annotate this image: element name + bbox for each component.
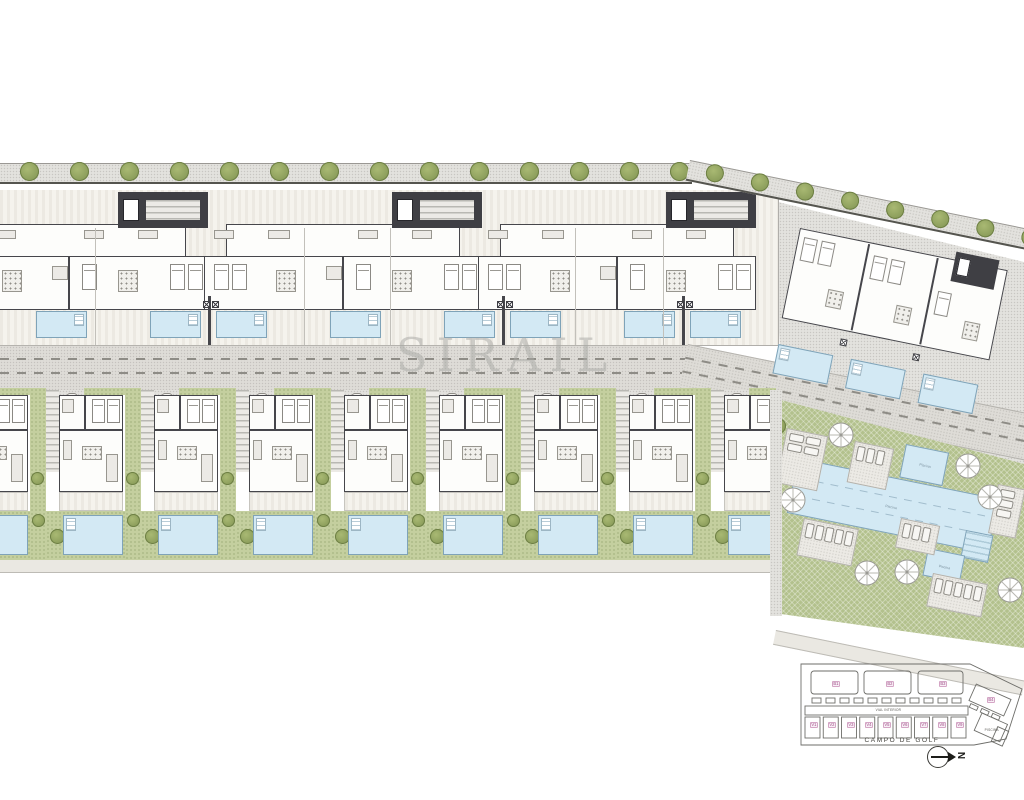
- tree-icon: [222, 514, 235, 527]
- keyplan: B1B2B3B4V1V2V3V4V5V6V7V8V9 VIAL INTERIOR…: [798, 655, 1024, 773]
- pool-steps: [368, 314, 378, 326]
- tree-icon: [370, 162, 389, 181]
- villa: [220, 388, 315, 560]
- interior-wall: [60, 429, 122, 431]
- front-green: [179, 388, 220, 395]
- tree-icon: [704, 163, 725, 184]
- kitchen: [581, 454, 593, 482]
- villa: [125, 388, 220, 560]
- villa-pool: [63, 515, 123, 555]
- front-green: [464, 388, 505, 395]
- sofa: [538, 440, 547, 460]
- keyplan-unit-label: V8: [938, 722, 945, 727]
- elevator: [671, 199, 687, 221]
- side-hedge: [315, 388, 331, 560]
- unit-boundary: [390, 228, 391, 345]
- plan-graphic: [938, 698, 947, 703]
- bed: [92, 399, 105, 423]
- stairs: [420, 200, 474, 220]
- bed: [582, 399, 595, 423]
- pool-steps: [731, 518, 741, 531]
- keyplan-unit-label: V9: [956, 722, 963, 727]
- side-hedge: [30, 388, 46, 560]
- pool-steps: [482, 314, 492, 326]
- tree-icon: [696, 472, 709, 485]
- dining-table: [652, 446, 672, 460]
- bed: [472, 399, 485, 423]
- villa-stairs: [141, 390, 155, 472]
- tree-icon: [470, 162, 489, 181]
- tree-icon: [270, 162, 289, 181]
- pool-steps: [541, 518, 551, 531]
- terrace-post: [497, 301, 504, 308]
- tree-icon: [170, 162, 189, 181]
- side-hedge: [505, 388, 521, 560]
- interior-wall: [179, 396, 181, 429]
- villa-pool: [348, 515, 408, 555]
- villa-stairs: [331, 390, 345, 472]
- villa: [505, 388, 600, 560]
- keyplan-unit-label: B4: [987, 697, 994, 702]
- kitchen: [296, 454, 308, 482]
- wardrobe: [138, 230, 158, 239]
- villa: [410, 388, 505, 560]
- kitchen: [391, 454, 403, 482]
- bed: [214, 264, 229, 290]
- dining-table: [0, 446, 7, 460]
- stair-core: [118, 192, 208, 228]
- tree-icon: [317, 514, 330, 527]
- private-pool: [330, 311, 381, 338]
- sofa: [348, 440, 357, 460]
- pool-steps: [351, 518, 361, 531]
- villa-row-lower-strip: [0, 560, 776, 573]
- watermark: SIRAIL: [396, 328, 616, 382]
- side-hedge: [220, 388, 236, 560]
- tree-icon: [32, 514, 45, 527]
- keyplan-pool-area-label: PISCINA: [985, 729, 999, 732]
- terrace-post: [686, 301, 693, 308]
- sofa: [728, 440, 737, 460]
- private-pool: [772, 344, 833, 385]
- tree-icon: [411, 472, 424, 485]
- dining-table: [177, 446, 197, 460]
- front-green: [559, 388, 600, 395]
- deck: [439, 492, 503, 511]
- campo-de-golf-label: CAMPO DE GOLF: [840, 737, 964, 744]
- deck: [724, 492, 776, 511]
- bed: [107, 399, 120, 423]
- villa-house: [0, 395, 28, 492]
- sofa: [633, 440, 642, 460]
- bathroom: [252, 399, 264, 413]
- plan-graphic: [882, 698, 891, 703]
- pool-steps: [923, 377, 935, 391]
- private-pool: [624, 311, 675, 338]
- deck: [629, 492, 693, 511]
- dining-table: [2, 270, 22, 292]
- bed: [377, 399, 390, 423]
- tree-icon: [316, 472, 329, 485]
- private-pool: [690, 311, 741, 338]
- villa-row: [0, 388, 776, 560]
- villa: [0, 388, 30, 560]
- interior-wall: [345, 429, 407, 431]
- plan-graphic: [896, 698, 905, 703]
- tree-icon: [601, 472, 614, 485]
- keyplan-unit-label: V7: [920, 722, 927, 727]
- kids-pool-label: Piscina: [916, 462, 934, 470]
- wardrobe: [488, 230, 508, 239]
- interior-wall: [654, 396, 656, 429]
- unit-boundary: [304, 228, 305, 345]
- bed: [757, 399, 770, 423]
- pool-steps: [161, 518, 171, 531]
- kitchen: [11, 454, 23, 482]
- keyplan-parking-ticks: [812, 698, 961, 703]
- keyplan-unit-label: V1: [810, 722, 817, 727]
- north-arrow-line: [931, 756, 949, 758]
- kitchen: [676, 454, 688, 482]
- tree-icon: [570, 162, 589, 181]
- dining-table: [82, 446, 102, 460]
- sofa: [63, 440, 72, 460]
- bed: [462, 264, 477, 290]
- bed: [444, 264, 459, 290]
- bed: [282, 399, 295, 423]
- bed: [232, 264, 247, 290]
- party-wall: [342, 256, 344, 310]
- interior-wall: [369, 396, 371, 429]
- bed: [12, 399, 25, 423]
- dining-table: [550, 270, 570, 292]
- villa: [600, 388, 695, 560]
- tree-icon: [221, 472, 234, 485]
- party-wall: [68, 256, 70, 310]
- tree-icon: [126, 472, 139, 485]
- interior-wall: [630, 429, 692, 431]
- tree-icon: [420, 162, 439, 181]
- bed: [506, 264, 521, 290]
- wardrobe: [0, 230, 16, 239]
- keyplan-unit-label: V4: [865, 722, 872, 727]
- dining-table: [557, 446, 577, 460]
- pool-steps: [256, 518, 266, 531]
- wardrobe: [84, 230, 104, 239]
- keyplan-outline: [798, 655, 1024, 773]
- kitchen-island: [600, 266, 616, 280]
- private-pool: [36, 311, 87, 338]
- terrace-post: [677, 301, 684, 308]
- front-green: [654, 388, 695, 395]
- tree-icon: [602, 514, 615, 527]
- villa-stairs: [46, 390, 60, 472]
- bed: [718, 264, 733, 290]
- party-wall: [616, 256, 618, 310]
- side-hedge: [125, 388, 141, 560]
- tree-icon: [839, 190, 860, 211]
- plan-graphic: [854, 698, 863, 703]
- villa-house: [154, 395, 218, 492]
- square-pool-label: Piscina: [936, 563, 954, 570]
- pool-steps: [548, 314, 558, 326]
- bed: [487, 399, 500, 423]
- elevator: [123, 199, 139, 221]
- stairs: [146, 200, 200, 220]
- deck: [344, 492, 408, 511]
- tree-icon: [697, 514, 710, 527]
- stair-core: [392, 192, 482, 228]
- stair-core: [666, 192, 756, 228]
- keyplan-road-label: VIAL INTERIOR: [876, 709, 902, 712]
- villa-stairs: [616, 390, 630, 472]
- interior-wall: [464, 396, 466, 429]
- keyplan-unit-label: B3: [939, 681, 946, 686]
- plan-graphic: [868, 698, 877, 703]
- villa-house: [629, 395, 693, 492]
- pool-steps: [728, 314, 738, 326]
- front-green: [0, 388, 30, 395]
- interior-wall: [0, 429, 27, 431]
- terrace-post: [506, 301, 513, 308]
- bed: [187, 399, 200, 423]
- deck: [154, 492, 218, 511]
- villa-stairs: [521, 390, 535, 472]
- villa-pool: [253, 515, 313, 555]
- tree-icon: [70, 162, 89, 181]
- interior-wall: [274, 396, 276, 429]
- bed: [630, 264, 645, 290]
- plan-graphic: [840, 698, 849, 703]
- site-plan-canvas: Piscina Piscina Piscina: [0, 0, 1024, 800]
- villa: [695, 388, 776, 560]
- dining-table: [392, 270, 412, 292]
- tree-icon: [930, 208, 951, 229]
- keyplan-unit-label: V3: [847, 722, 854, 727]
- kitchen-island: [52, 266, 68, 280]
- bed: [202, 399, 215, 423]
- interior-wall: [440, 429, 502, 431]
- pool-steps: [188, 314, 198, 326]
- pool-steps: [66, 518, 76, 531]
- terrace-post: [912, 353, 920, 361]
- deck: [59, 492, 123, 511]
- villa-house: [249, 395, 313, 492]
- bed: [488, 264, 503, 290]
- interior-wall: [535, 429, 597, 431]
- wardrobe: [542, 230, 564, 239]
- stairs: [694, 200, 748, 220]
- tree-icon: [520, 162, 539, 181]
- deck: [0, 492, 28, 511]
- plan-graphic: [974, 713, 1007, 742]
- wardrobe: [412, 230, 432, 239]
- dining-table: [666, 270, 686, 292]
- bed: [567, 399, 580, 423]
- bed: [392, 399, 405, 423]
- wardrobe: [632, 230, 652, 239]
- bed: [356, 264, 371, 290]
- villa: [30, 388, 125, 560]
- bathroom: [62, 399, 74, 413]
- tree-icon: [506, 472, 519, 485]
- top-apartment-band: [0, 190, 778, 345]
- tree-icon: [220, 162, 239, 181]
- keyplan-unit-label: B1: [832, 681, 839, 686]
- private-pool: [917, 374, 978, 415]
- bathroom: [442, 399, 454, 413]
- keyplan-unit-label: V6: [902, 722, 909, 727]
- villa-pool: [633, 515, 693, 555]
- villa-house: [59, 395, 123, 492]
- interior-wall: [559, 396, 561, 429]
- villa-pool: [728, 515, 776, 555]
- interior-wall: [250, 429, 312, 431]
- plan-graphic: [910, 698, 919, 703]
- bed: [677, 399, 690, 423]
- plan-graphic: [969, 704, 978, 711]
- bed: [0, 399, 10, 423]
- tree-icon: [507, 514, 520, 527]
- unit-boundary: [663, 228, 664, 345]
- north-arrow: N: [927, 746, 971, 770]
- pool-steps: [778, 348, 790, 362]
- bed: [188, 264, 203, 290]
- kitchen: [106, 454, 118, 482]
- tree-icon: [127, 514, 140, 527]
- pool-steps: [851, 362, 863, 376]
- kitchen-island: [326, 266, 342, 280]
- keyplan-unit-label: V5: [883, 722, 890, 727]
- tree-icon: [749, 172, 770, 193]
- bathroom: [727, 399, 739, 413]
- villa-pool: [0, 515, 28, 555]
- keyplan-unit-label: V2: [829, 722, 836, 727]
- deck: [249, 492, 313, 511]
- villa-pool: [538, 515, 598, 555]
- bed: [170, 264, 185, 290]
- terrace-post: [203, 301, 210, 308]
- wardrobe: [268, 230, 290, 239]
- dining-table: [118, 270, 138, 292]
- private-pool: [845, 359, 906, 400]
- sofa: [158, 440, 167, 460]
- private-pool: [216, 311, 267, 338]
- villa: [315, 388, 410, 560]
- villa-house: [534, 395, 598, 492]
- tree-icon: [794, 181, 815, 202]
- interior-wall: [749, 396, 751, 429]
- tree-icon: [412, 514, 425, 527]
- wardrobe: [358, 230, 378, 239]
- pool-steps: [74, 314, 84, 326]
- tree-icon: [885, 199, 906, 220]
- elevator: [397, 199, 413, 221]
- plan-graphic: [924, 698, 933, 703]
- dining-table: [272, 446, 292, 460]
- villa-house: [344, 395, 408, 492]
- bed: [736, 264, 751, 290]
- terrace-post: [212, 301, 219, 308]
- bathroom: [347, 399, 359, 413]
- dining-table: [747, 446, 767, 460]
- tree-icon: [975, 218, 996, 239]
- villa-house: [439, 395, 503, 492]
- plan-graphic: [952, 698, 961, 703]
- main-pool-label: Piscina: [882, 503, 900, 511]
- front-green: [274, 388, 315, 395]
- pool-steps: [960, 530, 993, 563]
- side-hedge: [695, 388, 711, 560]
- kitchen: [486, 454, 498, 482]
- front-green: [84, 388, 125, 395]
- tree-icon: [1020, 227, 1024, 248]
- elevator: [956, 257, 971, 277]
- wardrobe: [214, 230, 234, 239]
- pool-steps: [636, 518, 646, 531]
- tree-icon: [20, 162, 39, 181]
- pool-steps: [254, 314, 264, 326]
- villa-pool: [443, 515, 503, 555]
- pool-steps: [446, 518, 456, 531]
- sofa: [443, 440, 452, 460]
- villa-stairs: [426, 390, 440, 472]
- unit-boundary: [95, 228, 96, 345]
- dining-table: [276, 270, 296, 292]
- tree-icon: [620, 162, 639, 181]
- tree-icon: [31, 472, 44, 485]
- interior-wall: [155, 429, 217, 431]
- kitchen: [201, 454, 213, 482]
- side-hedge: [600, 388, 616, 560]
- keyplan-unit-label: B2: [886, 681, 893, 686]
- private-pool: [150, 311, 201, 338]
- front-green: [369, 388, 410, 395]
- plan-graphic: [826, 698, 835, 703]
- terrace-post: [839, 338, 847, 346]
- bed: [297, 399, 310, 423]
- dining-table: [462, 446, 482, 460]
- villa-stairs: [711, 390, 725, 472]
- dining-table: [367, 446, 387, 460]
- villa-house: [724, 395, 776, 492]
- north-letter: N: [955, 752, 966, 759]
- top-hedge-strip: [0, 163, 692, 184]
- bathroom: [157, 399, 169, 413]
- tree-icon: [120, 162, 139, 181]
- villa-pool: [158, 515, 218, 555]
- sofa: [253, 440, 262, 460]
- plan-graphic: [812, 698, 821, 703]
- deck: [534, 492, 598, 511]
- wardrobe: [686, 230, 706, 239]
- interior-wall: [725, 429, 776, 431]
- villa-stairs: [236, 390, 250, 472]
- bed: [662, 399, 675, 423]
- tree-icon: [320, 162, 339, 181]
- side-hedge: [410, 388, 426, 560]
- communal-left-walk: [770, 390, 782, 616]
- bathroom: [537, 399, 549, 413]
- interior-wall: [84, 396, 86, 429]
- bathroom: [632, 399, 644, 413]
